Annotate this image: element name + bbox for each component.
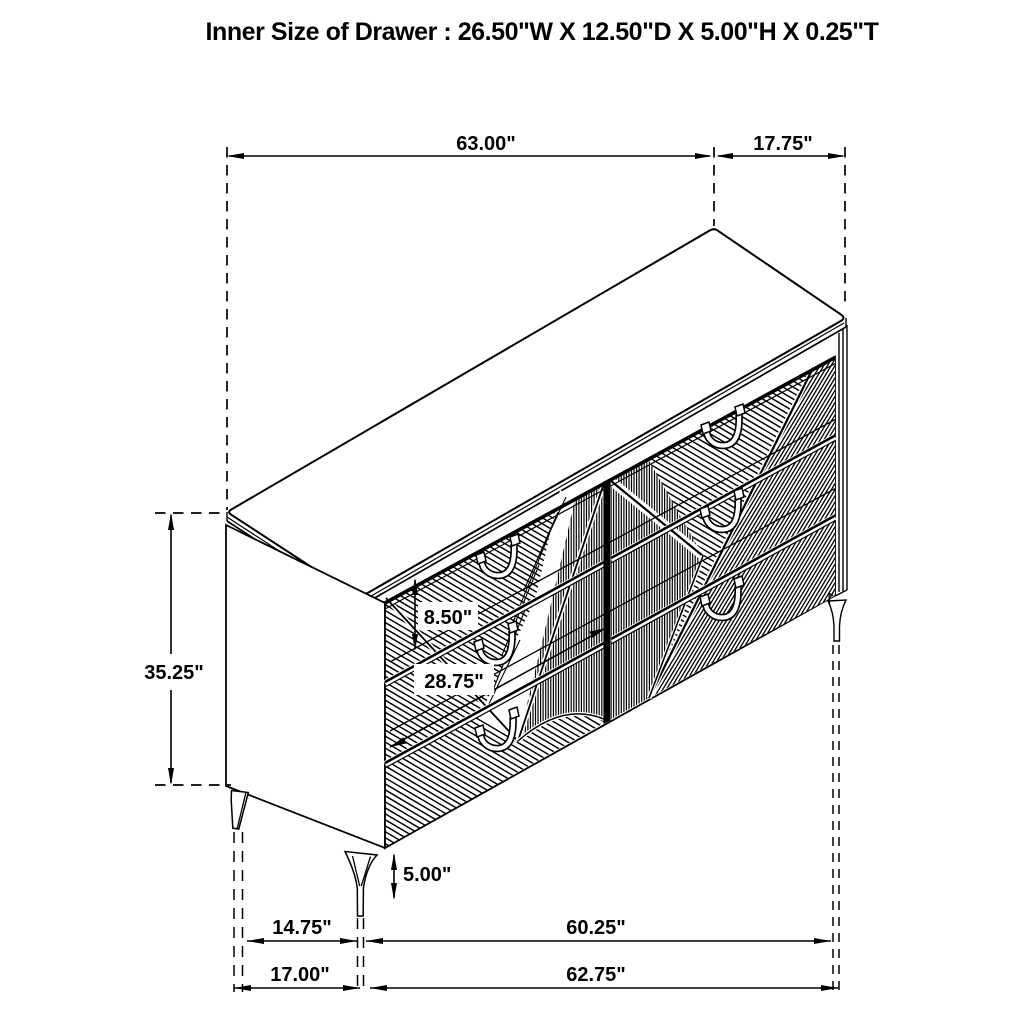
svg-text:14.75": 14.75"	[272, 917, 332, 939]
svg-text:Inner Size of Drawer : 26.50"W: Inner Size of Drawer : 26.50"W X 12.50"D…	[206, 18, 879, 46]
svg-text:28.75": 28.75"	[424, 671, 484, 693]
svg-text:8.50": 8.50"	[424, 607, 472, 629]
svg-text:17.00": 17.00"	[270, 964, 330, 986]
svg-text:5.00": 5.00"	[403, 864, 451, 886]
svg-text:17.75": 17.75"	[753, 133, 813, 155]
svg-text:62.75": 62.75"	[566, 964, 626, 986]
svg-text:63.00": 63.00"	[456, 133, 516, 155]
svg-text:60.25": 60.25"	[566, 917, 626, 939]
svg-text:35.25": 35.25"	[144, 662, 204, 684]
